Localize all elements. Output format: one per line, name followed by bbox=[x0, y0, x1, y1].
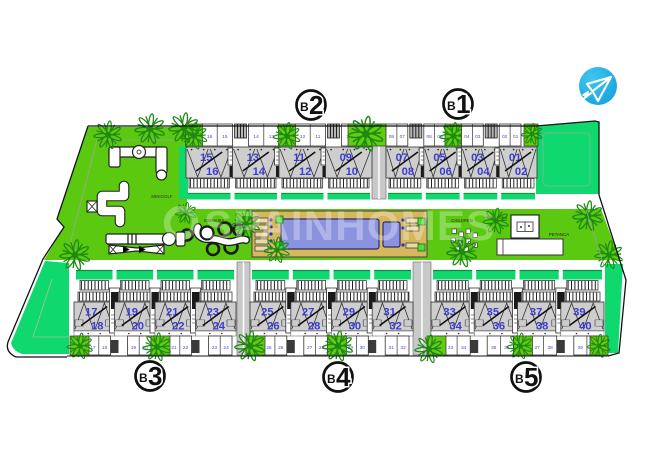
svg-text:09: 09 bbox=[340, 152, 352, 164]
svg-text:01: 01 bbox=[509, 152, 521, 164]
svg-text:27: 27 bbox=[307, 345, 313, 351]
svg-text:13: 13 bbox=[247, 152, 259, 164]
svg-text:27: 27 bbox=[302, 307, 314, 319]
svg-text:39: 39 bbox=[573, 307, 585, 319]
svg-text:07: 07 bbox=[396, 152, 408, 164]
svg-text:21: 21 bbox=[171, 345, 177, 351]
svg-text:06: 06 bbox=[427, 134, 433, 140]
svg-text:17: 17 bbox=[90, 345, 96, 351]
svg-text:1: 1 bbox=[456, 89, 470, 119]
svg-text:40: 40 bbox=[579, 321, 591, 333]
svg-text:32: 32 bbox=[400, 345, 406, 351]
svg-text:PETANCA: PETANCA bbox=[549, 232, 569, 237]
svg-text:22: 22 bbox=[183, 345, 189, 351]
svg-text:08: 08 bbox=[402, 166, 414, 178]
svg-text:23: 23 bbox=[212, 345, 218, 351]
svg-text:36: 36 bbox=[493, 321, 505, 333]
svg-text:19: 19 bbox=[126, 307, 138, 319]
svg-text:B: B bbox=[327, 372, 336, 386]
svg-text:08: 08 bbox=[389, 134, 395, 140]
svg-text:20: 20 bbox=[132, 321, 144, 333]
svg-text:30: 30 bbox=[360, 345, 366, 351]
svg-text:18: 18 bbox=[102, 345, 108, 351]
svg-text:25: 25 bbox=[261, 307, 273, 319]
svg-text:34: 34 bbox=[461, 345, 467, 351]
svg-text:B: B bbox=[300, 100, 309, 114]
svg-text:33: 33 bbox=[448, 345, 454, 351]
svg-text:25: 25 bbox=[266, 345, 272, 351]
svg-text:15: 15 bbox=[222, 134, 228, 140]
svg-text:37: 37 bbox=[530, 307, 542, 319]
svg-text:02: 02 bbox=[515, 166, 527, 178]
svg-text:23: 23 bbox=[207, 307, 219, 319]
svg-text:14: 14 bbox=[253, 134, 259, 140]
svg-text:35: 35 bbox=[487, 307, 499, 319]
svg-text:19: 19 bbox=[131, 345, 137, 351]
svg-text:24: 24 bbox=[213, 321, 226, 333]
svg-text:12: 12 bbox=[299, 166, 311, 178]
svg-text:32: 32 bbox=[389, 321, 401, 333]
svg-text:24: 24 bbox=[223, 345, 229, 351]
svg-text:16: 16 bbox=[207, 134, 213, 140]
svg-text:31: 31 bbox=[383, 307, 395, 319]
svg-text:16: 16 bbox=[206, 166, 218, 178]
svg-text:SPAINHOMES: SPAINHOMES bbox=[204, 202, 495, 249]
svg-text:18: 18 bbox=[91, 321, 103, 333]
svg-text:33: 33 bbox=[443, 307, 455, 319]
svg-text:04: 04 bbox=[477, 166, 490, 178]
svg-text:10: 10 bbox=[346, 166, 358, 178]
svg-text:17: 17 bbox=[85, 307, 97, 319]
svg-text:21: 21 bbox=[166, 307, 178, 319]
svg-text:03: 03 bbox=[471, 152, 483, 164]
svg-text:30: 30 bbox=[349, 321, 361, 333]
svg-text:35: 35 bbox=[491, 345, 497, 351]
svg-text:14: 14 bbox=[253, 166, 266, 178]
svg-text:28: 28 bbox=[308, 321, 320, 333]
svg-text:37: 37 bbox=[534, 345, 540, 351]
svg-text:26: 26 bbox=[267, 321, 279, 333]
svg-text:B: B bbox=[515, 372, 524, 386]
svg-text:38: 38 bbox=[536, 321, 548, 333]
svg-text:38: 38 bbox=[548, 345, 554, 351]
svg-text:B: B bbox=[447, 99, 456, 113]
svg-text:4: 4 bbox=[336, 362, 351, 392]
svg-text:34: 34 bbox=[449, 321, 462, 333]
svg-text:01: 01 bbox=[513, 134, 519, 140]
svg-text:MINIGOLF: MINIGOLF bbox=[151, 194, 173, 199]
svg-text:11: 11 bbox=[315, 134, 320, 140]
svg-text:31: 31 bbox=[389, 345, 395, 351]
svg-text:12: 12 bbox=[300, 134, 306, 140]
svg-text:29: 29 bbox=[343, 307, 355, 319]
svg-text:04: 04 bbox=[464, 134, 470, 140]
svg-text:05: 05 bbox=[433, 152, 445, 164]
svg-text:03: 03 bbox=[475, 134, 481, 140]
svg-text:5: 5 bbox=[524, 362, 538, 392]
svg-text:11: 11 bbox=[293, 152, 305, 164]
svg-text:06: 06 bbox=[439, 166, 451, 178]
svg-text:B: B bbox=[139, 371, 148, 385]
svg-text:07: 07 bbox=[400, 134, 406, 140]
svg-text:02: 02 bbox=[502, 134, 508, 140]
svg-text:15: 15 bbox=[200, 152, 212, 164]
svg-text:39: 39 bbox=[578, 345, 584, 351]
svg-text:22: 22 bbox=[172, 321, 184, 333]
svg-text:2: 2 bbox=[309, 90, 323, 120]
svg-text:26: 26 bbox=[278, 345, 284, 351]
svg-text:3: 3 bbox=[148, 361, 162, 391]
